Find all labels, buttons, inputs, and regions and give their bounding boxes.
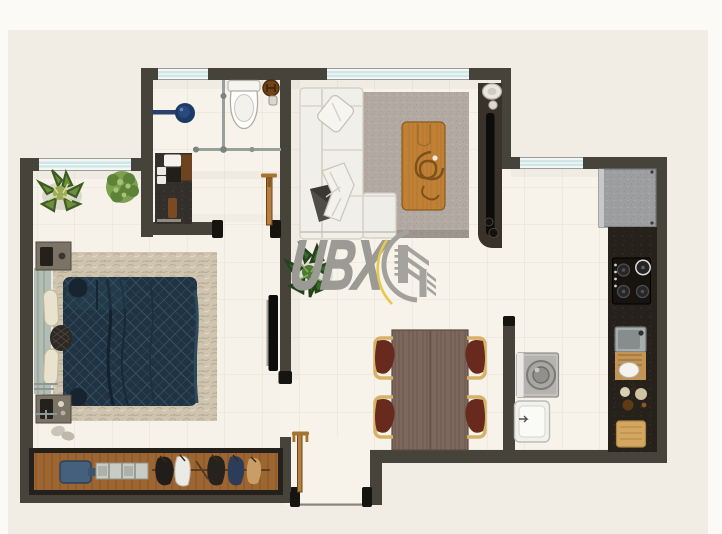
svg-text:UBX: UBX xyxy=(286,225,391,304)
